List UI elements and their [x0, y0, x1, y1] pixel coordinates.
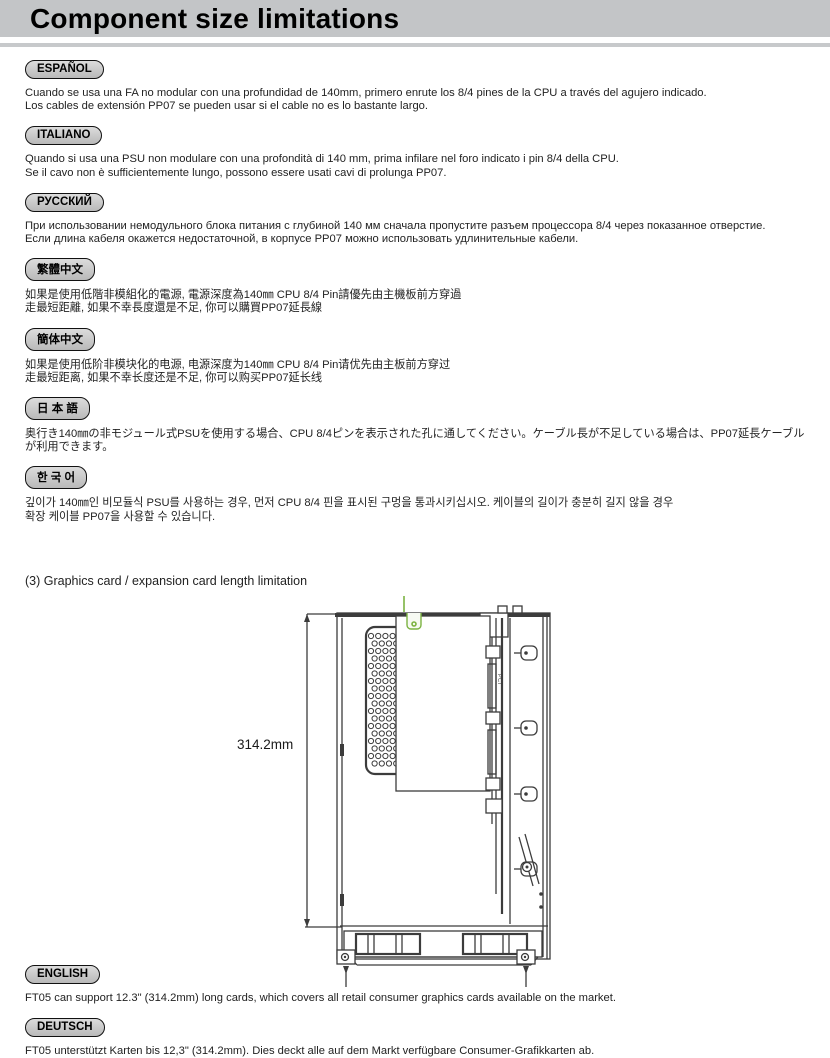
section-text-line: 走最短距离, 如果不幸长度还是不足, 你可以购买PP07延长线	[25, 372, 805, 385]
language-badge: 한 국 어	[25, 466, 87, 489]
section-text-line: Cuando se usa una FA no modular con una …	[25, 87, 805, 100]
language-sections: ESPAÑOL Cuando se usa una FA no modular …	[25, 59, 805, 524]
graphics-card-outline	[396, 616, 490, 791]
language-section: РУССКИЙ При использовании немодульного б…	[25, 192, 805, 246]
language-badge: ESPAÑOL	[25, 60, 104, 79]
language-section: 繁體中文 如果是使用低階非模組化的電源, 電源深度為140㎜ CPU 8/4 P…	[25, 258, 805, 315]
thumbscrews	[514, 646, 537, 876]
section-text-line: 走最短距離, 如果不幸長度還是不足, 你可以購買PP07延長線	[25, 302, 805, 315]
section-text-line: FT05 can support 12.3" (314.2mm) long ca…	[25, 992, 805, 1005]
language-badge: ENGLISH	[25, 965, 100, 984]
language-section: ESPAÑOL Cuando se usa una FA no modular …	[25, 59, 805, 113]
figure-heading: (3) Graphics card / expansion card lengt…	[25, 574, 805, 588]
case-diagram: 314.2mm	[25, 594, 805, 952]
language-section: 한 국 어 깊이가 140㎜인 비모듈식 PSU를 사용하는 경우, 먼저 CP…	[25, 466, 805, 523]
language-badge: 繁體中文	[25, 258, 95, 281]
language-badge: 日 本 語	[25, 397, 90, 420]
section-text-line: 如果是使用低階非模組化的電源, 電源深度為140㎜ CPU 8/4 Pin請優先…	[25, 289, 805, 302]
case-side-view-svg: PCI	[230, 594, 580, 992]
header-divider	[0, 43, 830, 47]
language-section: 簡体中文 如果是使用低阶非模块化的电源, 电源深度为140㎜ CPU 8/4 P…	[25, 328, 805, 385]
thumbscrew	[514, 787, 537, 801]
case-feet	[337, 950, 535, 987]
language-badge: 簡体中文	[25, 328, 95, 351]
section-text: FT05 unterstützt Karten bis 12,3" (314.2…	[25, 1045, 805, 1058]
section-text-line: 如果是使用低阶非模块化的电源, 电源深度为140㎜ CPU 8/4 Pin请优先…	[25, 359, 805, 372]
section-text-line: Если длина кабеля окажется недостаточной…	[25, 233, 805, 246]
page-content: ESPAÑOL Cuando se usa una FA no modular …	[0, 59, 830, 1058]
language-section: 日 本 語 奥行き140㎜の非モジュール式PSUを使用する場合、CPU 8/4ピ…	[25, 397, 805, 454]
section-text-line: Se il cavo non è sufficientemente lungo,…	[25, 167, 805, 180]
language-badge: DEUTSCH	[25, 1018, 105, 1037]
language-badge: ITALIANO	[25, 126, 102, 145]
page-title: Component size limitations	[30, 3, 399, 35]
section-text: При использовании немодульного блока пит…	[25, 220, 805, 246]
manual-page: Component size limitations ESPAÑOL Cuand…	[0, 0, 830, 1058]
section-text-line: FT05 unterstützt Karten bis 12,3" (314.2…	[25, 1045, 805, 1058]
section-text: 如果是使用低階非模組化的電源, 電源深度為140㎜ CPU 8/4 Pin請優先…	[25, 289, 805, 315]
pci-label: PCI	[496, 674, 502, 685]
thumbscrew	[514, 646, 537, 660]
section-text-line: Los cables de extensión PP07 se pueden u…	[25, 100, 805, 113]
language-section: ITALIANO Quando si usa una PSU non modul…	[25, 125, 805, 179]
page-title-bar: Component size limitations	[0, 0, 830, 37]
section-text-line: При использовании немодульного блока пит…	[25, 220, 805, 233]
section-text-line: 奥行き140㎜の非モジュール式PSUを使用する場合、CPU 8/4ピンを表示され…	[25, 428, 805, 454]
section-text: 깊이가 140㎜인 비모듈식 PSU를 사용하는 경우, 먼저 CPU 8/4 …	[25, 497, 805, 523]
language-badge: РУССКИЙ	[25, 193, 104, 212]
section-text: Cuando se usa una FA no modular con una …	[25, 87, 805, 113]
section-text-line: 확장 케이블 PP07을 사용할 수 있습니다.	[25, 511, 805, 524]
thumbscrew	[514, 721, 537, 735]
section-text: FT05 can support 12.3" (314.2mm) long ca…	[25, 992, 805, 1005]
language-section: DEUTSCH FT05 unterstützt Karten bis 12,3…	[25, 1017, 805, 1058]
section-text: 如果是使用低阶非模块化的电源, 电源深度为140㎜ CPU 8/4 Pin请优先…	[25, 359, 805, 385]
section-text: Quando si usa una PSU non modulare con u…	[25, 153, 805, 179]
dimension-line	[304, 614, 342, 927]
section-text-line: Quando si usa una PSU non modulare con u…	[25, 153, 805, 166]
section-text-line: 깊이가 140㎜인 비모듈식 PSU를 사용하는 경우, 먼저 CPU 8/4 …	[25, 497, 805, 510]
section-text: 奥行き140㎜の非モジュール式PSUを使用する場合、CPU 8/4ピンを表示され…	[25, 428, 805, 454]
